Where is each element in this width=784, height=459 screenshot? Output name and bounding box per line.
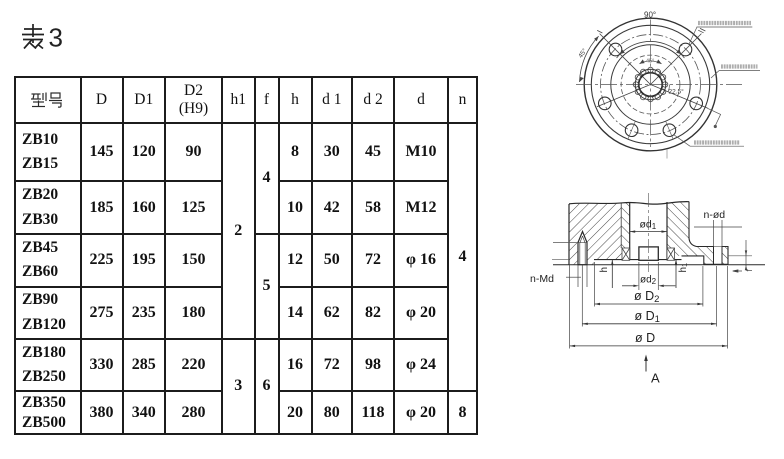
svg-text:ød2: ød2 [640, 275, 657, 287]
svg-text:n-ød: n-ød [704, 209, 726, 221]
svg-text:45°: 45° [576, 47, 588, 60]
svg-text:n-Md: n-Md [530, 273, 554, 285]
svg-text:22.5°: 22.5° [669, 88, 685, 96]
svg-text:45°: 45° [646, 59, 654, 65]
svg-text:ød1: ød1 [640, 219, 657, 232]
svg-text:90°: 90° [644, 11, 656, 20]
svg-text:ø D1: ø D1 [635, 309, 660, 325]
svg-text:ø D: ø D [635, 331, 655, 345]
svg-text:3: 3 [49, 23, 63, 53]
svg-text:h: h [599, 267, 610, 273]
svg-text:A: A [651, 371, 660, 386]
svg-text:h1: h1 [678, 263, 689, 273]
svg-text:ø D2: ø D2 [634, 289, 659, 305]
